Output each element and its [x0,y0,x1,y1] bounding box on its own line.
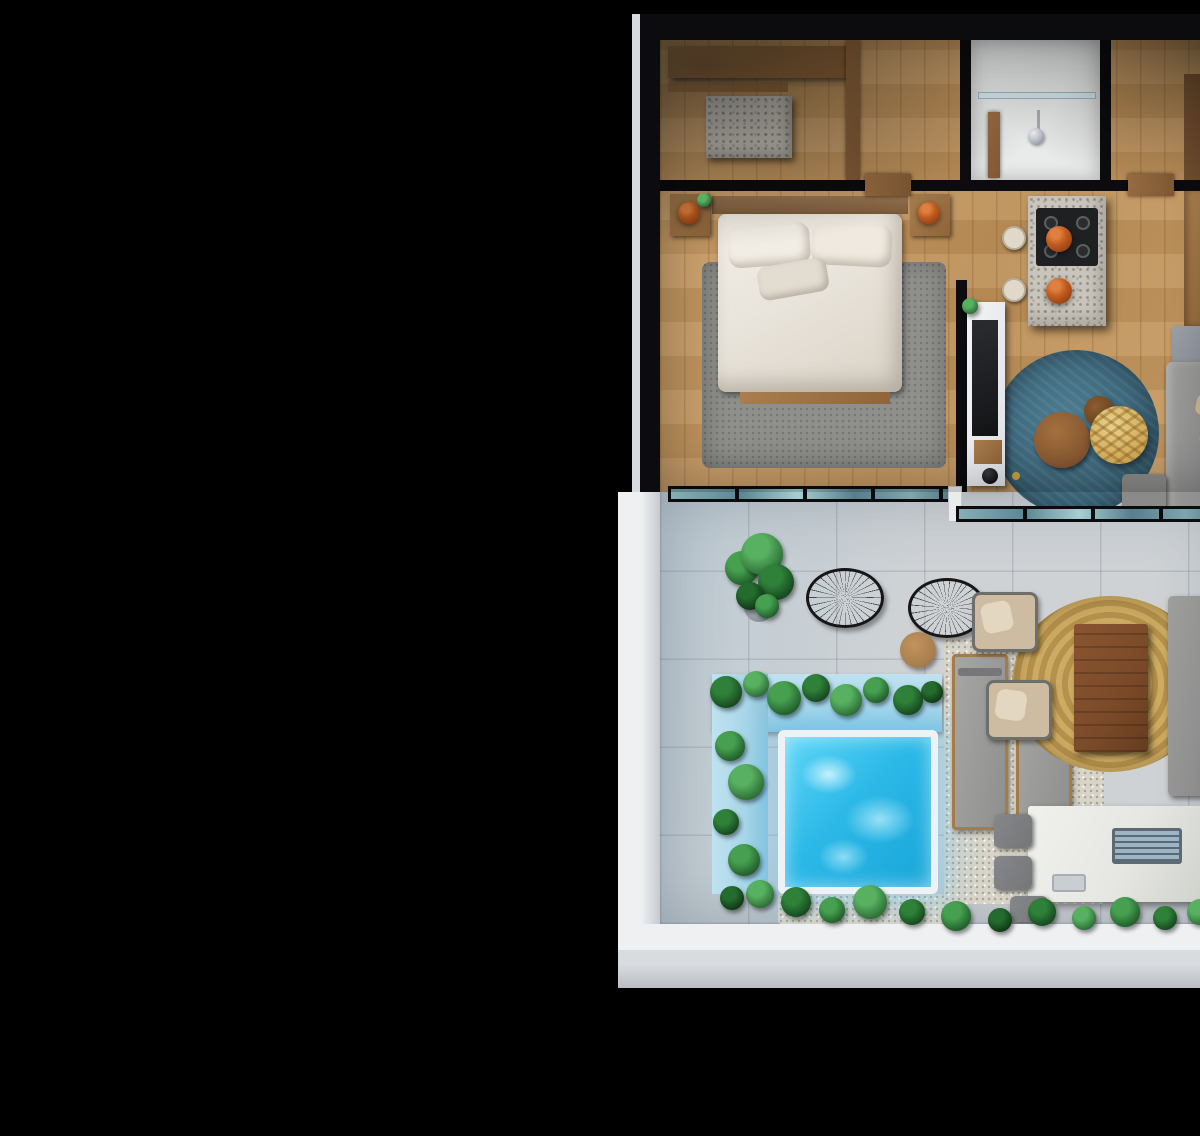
bedroom-sliding-glass [668,486,956,502]
outer-wall-top [632,14,1200,40]
kitchen-tall-cabinet [1184,74,1200,190]
outer-wall-left-interior [632,14,660,492]
coffee-table [1034,412,1090,468]
island-pendant-lamp [1046,226,1072,252]
shower-glass-partition [978,92,1096,99]
tv-screen [972,320,998,436]
living-sliding-glass [956,506,1200,522]
sofa [1166,362,1200,512]
outdoor-chair [1010,896,1048,922]
terrace-side-table [900,632,936,668]
bar-stool [1002,278,1026,302]
kitchen-counter-right [1184,190,1200,326]
apartment-floorplan [660,40,1200,920]
acapulco-chair [806,568,884,628]
wall-bedroom-living-divider [956,280,967,492]
wall-bathroom-right [1100,40,1111,180]
rattan-pendant-lamp [1090,406,1148,464]
bedside-lamp-right [918,202,940,224]
bathroom-door [988,112,1000,178]
closet-lower-shelf [668,82,788,92]
media-shelf [974,440,1002,464]
gravel-strip-below-pool [778,894,944,924]
bedroom-door [865,174,911,196]
pool-planter-wall-left [712,674,768,894]
closet-shelf-counter [668,46,846,78]
sink-basin-chrome [1028,128,1044,144]
wall-bathroom-left [960,40,971,180]
outdoor-chair [994,814,1032,848]
cooktop-burner [1076,216,1090,230]
outdoor-sink [1052,874,1086,892]
black-background [0,0,1200,1136]
island-pendant-lamp [1046,278,1072,304]
floor-decor-gold [1012,472,1020,480]
outdoor-chair [994,856,1032,890]
outer-wall-bottom [618,924,1200,988]
wall-closet-bedroom [660,180,1200,191]
outer-wall-left-terrace [618,492,660,924]
black-vase [982,468,998,484]
wicker-chair-pillow [994,688,1028,722]
kitchen-hall-door [1128,174,1174,196]
cooktop-burner [1076,244,1090,258]
bar-stool [1002,226,1026,250]
palm-pot [744,592,774,622]
bedside-lamp-left [678,202,700,224]
plunge-pool [778,730,938,894]
outdoor-wood-table [1074,624,1148,752]
lounger-headrest [958,668,1002,676]
outdoor-sofa [1168,596,1200,796]
bbq-grill [1112,828,1182,864]
bed-headboard [712,196,908,214]
closet-terrazzo-steps [706,96,792,158]
closet-partition-wood [846,40,860,180]
bed-foot-bench [740,392,890,404]
